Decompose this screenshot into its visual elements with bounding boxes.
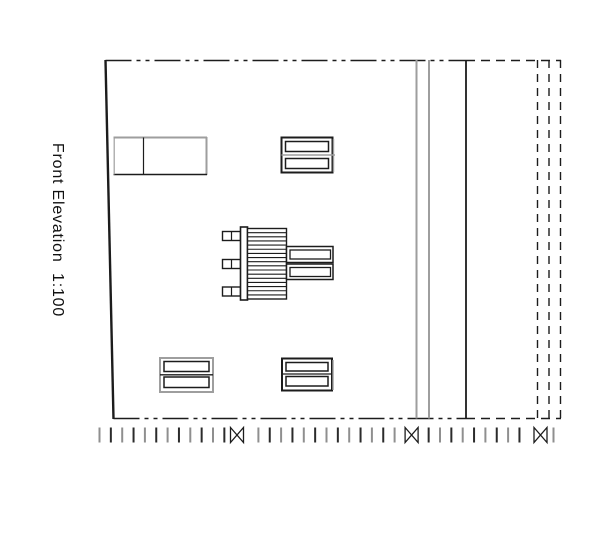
x-marker <box>231 428 244 443</box>
left-wall-edge <box>106 60 114 419</box>
window-bottom-right-pane-lower <box>286 377 328 387</box>
window-bottom-left-pane-lower <box>164 377 209 388</box>
window-top-pane-upper <box>286 142 329 152</box>
duct-lower-inner <box>290 268 331 277</box>
window-top-pane-lower <box>286 159 329 169</box>
x-marker <box>534 428 547 443</box>
duct-upper-inner <box>290 250 331 259</box>
flue-post <box>241 227 248 300</box>
elevation-drawing <box>0 0 610 533</box>
louvre-stack-outline <box>248 229 287 300</box>
x-marker <box>405 428 418 443</box>
louvre-stack <box>248 229 287 300</box>
window-bottom-right-pane-upper <box>286 363 328 372</box>
window-bottom-left-pane-upper <box>164 362 209 372</box>
cad-canvas: Front Elevation 1:100 <box>0 0 610 533</box>
